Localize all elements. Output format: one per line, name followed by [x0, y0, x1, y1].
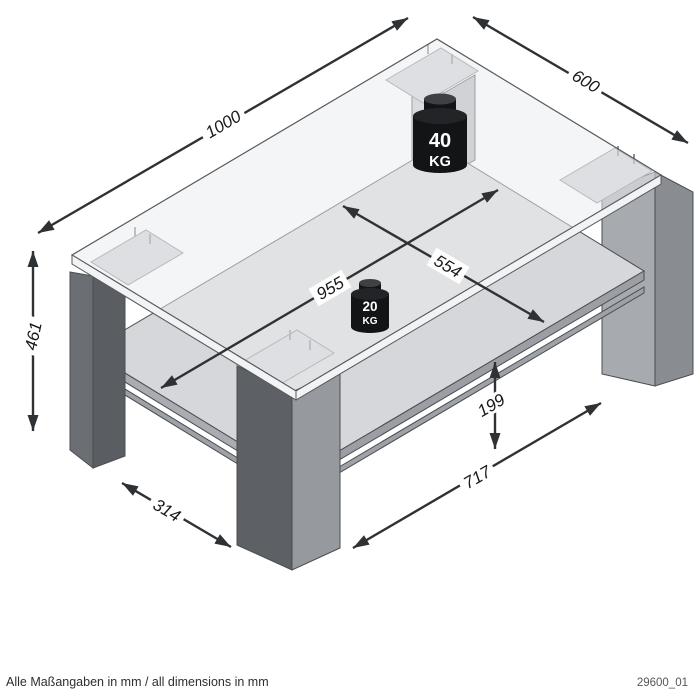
table-front-leg	[237, 366, 340, 570]
load-top-value: 40	[429, 130, 451, 152]
load-shelf-value: 20	[362, 299, 377, 314]
dimension-height: 461	[19, 251, 46, 431]
footer-drawing-code: 29600_01	[637, 677, 688, 689]
technical-drawing-page: 40 KG 20 KG 1000 600	[0, 0, 700, 700]
dim-label-height: 461	[21, 320, 45, 352]
load-top-unit: KG	[429, 154, 451, 170]
footer-units-note: Alle Maßangaben in mm / all dimensions i…	[6, 675, 269, 689]
coffee-table-dimension-diagram: 40 KG 20 KG 1000 600	[0, 0, 700, 700]
load-shelf-unit: KG	[363, 316, 378, 327]
table-front-left-leg	[70, 272, 125, 468]
dimension-leg-span-side: 314	[122, 483, 231, 547]
